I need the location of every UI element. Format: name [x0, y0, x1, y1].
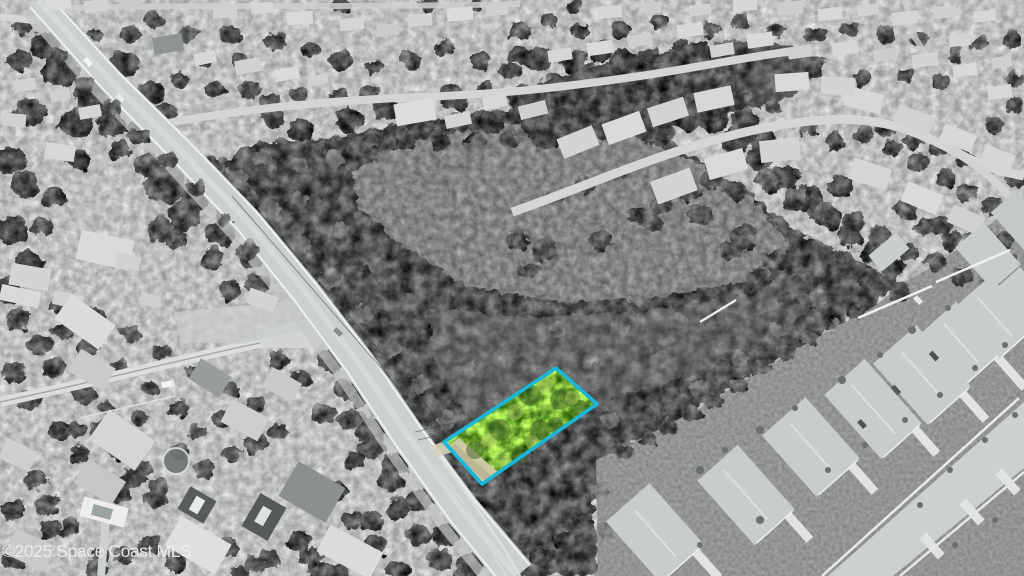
svg-text:©2025 Space Coast MLS: ©2025 Space Coast MLS: [2, 541, 191, 561]
